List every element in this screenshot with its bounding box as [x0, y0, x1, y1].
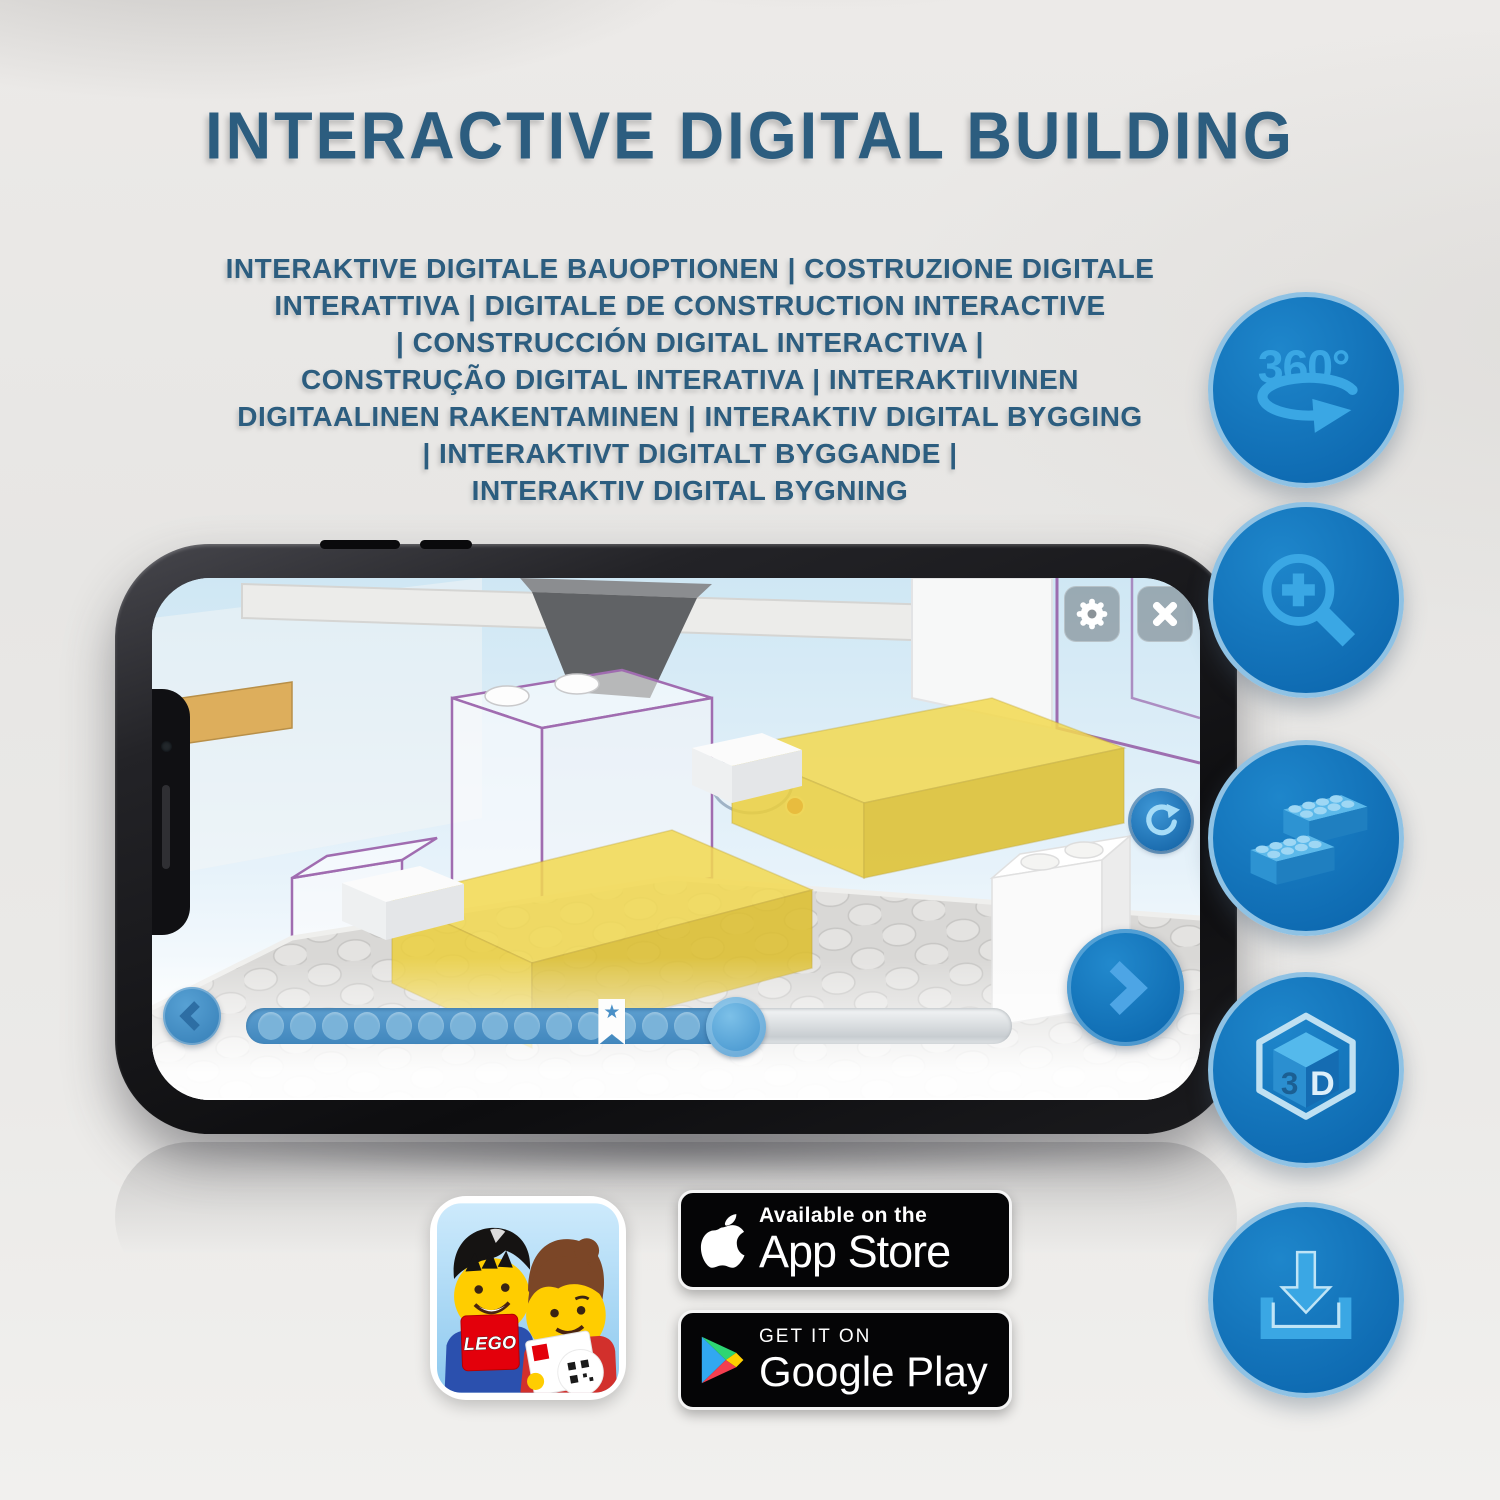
chevron-left-icon: [175, 996, 209, 1036]
subtitle-line: | INTERAKTIVT DIGITALT BYGGANDE |: [150, 435, 1230, 472]
subtitle-multilingual: INTERAKTIVE DIGITALE BAUOPTIONEN | COSTR…: [150, 250, 1230, 509]
subtitle-line: INTERAKTIV DIGITAL BYGNING: [150, 472, 1230, 509]
chevron-right-icon: [1098, 958, 1154, 1018]
feature-download: [1208, 1202, 1404, 1398]
front-camera: [161, 741, 172, 752]
3d-cube-icon: 3 D: [1243, 1007, 1369, 1133]
lego-app-icon-art: LEGO: [437, 1203, 619, 1393]
page: INTERACTIVE DIGITAL BUILDING INTERAKTIVE…: [0, 0, 1500, 1500]
360-rotation-icon: 360°: [1243, 327, 1369, 453]
lego-logo-text: LEGO: [463, 1332, 517, 1354]
zoom-in-icon: [1243, 537, 1369, 663]
app-store-name: App Store: [759, 1228, 950, 1276]
close-button[interactable]: [1137, 586, 1193, 642]
subtitle-line: CONSTRUÇÃO DIGITAL INTERATIVA | INTERAKT…: [150, 361, 1230, 398]
3d-label-3: 3: [1281, 1065, 1299, 1101]
google-play-tagline: GET IT ON: [759, 1325, 988, 1349]
feature-bricks: [1208, 740, 1404, 936]
progress-dots: [258, 1012, 736, 1040]
volume-button: [420, 540, 472, 549]
app-store-badge[interactable]: Available on the App Store: [678, 1190, 1012, 1290]
gear-icon: [1074, 596, 1110, 632]
feature-zoom-in: [1208, 502, 1404, 698]
download-icon: [1243, 1237, 1369, 1363]
previous-step-button[interactable]: [163, 987, 221, 1045]
apple-logo-icon: [699, 1212, 745, 1268]
feature-3d-view: 3 D: [1208, 972, 1404, 1168]
rotate-view-button[interactable]: [1131, 791, 1191, 851]
app-store-tagline: Available on the: [759, 1204, 950, 1228]
google-play-badge[interactable]: GET IT ON Google Play: [678, 1310, 1012, 1410]
lego-brick-icon: [1243, 775, 1369, 901]
lego-logo: LEGO: [461, 1314, 520, 1371]
settings-button[interactable]: [1064, 586, 1120, 642]
progress-fill: [246, 1008, 736, 1044]
phone-notch: [152, 689, 190, 935]
google-play-icon: [697, 1334, 745, 1386]
subtitle-line: INTERAKTIVE DIGITALE BAUOPTIONEN | COSTR…: [150, 250, 1230, 287]
earpiece-speaker: [162, 785, 170, 869]
subtitle-line: | CONSTRUCCIÓN DIGITAL INTERACTIVA |: [150, 324, 1230, 361]
progress-thumb[interactable]: [706, 997, 766, 1057]
lego-app-icon: LEGO: [430, 1196, 626, 1400]
page-title: INTERACTIVE DIGITAL BUILDING: [0, 98, 1500, 174]
feature-360-rotation: 360°: [1208, 292, 1404, 488]
google-play-name: Google Play: [759, 1349, 988, 1395]
3d-label-d: D: [1310, 1065, 1335, 1103]
next-step-button[interactable]: [1067, 929, 1184, 1046]
subtitle-line: DIGITAALINEN RAKENTAMINEN | INTERAKTIV D…: [150, 398, 1230, 435]
build-progress-slider[interactable]: ★: [246, 1008, 1012, 1044]
rotate-cw-icon: [1142, 802, 1180, 840]
phone-screen: ★: [152, 578, 1200, 1100]
volume-button: [320, 540, 400, 549]
close-icon: [1148, 597, 1182, 631]
subtitle-line: INTERATTIVA | DIGITALE DE CONSTRUCTION I…: [150, 287, 1230, 324]
phone-reflection: [115, 1142, 1237, 1292]
phone-frame: ★: [115, 544, 1237, 1134]
